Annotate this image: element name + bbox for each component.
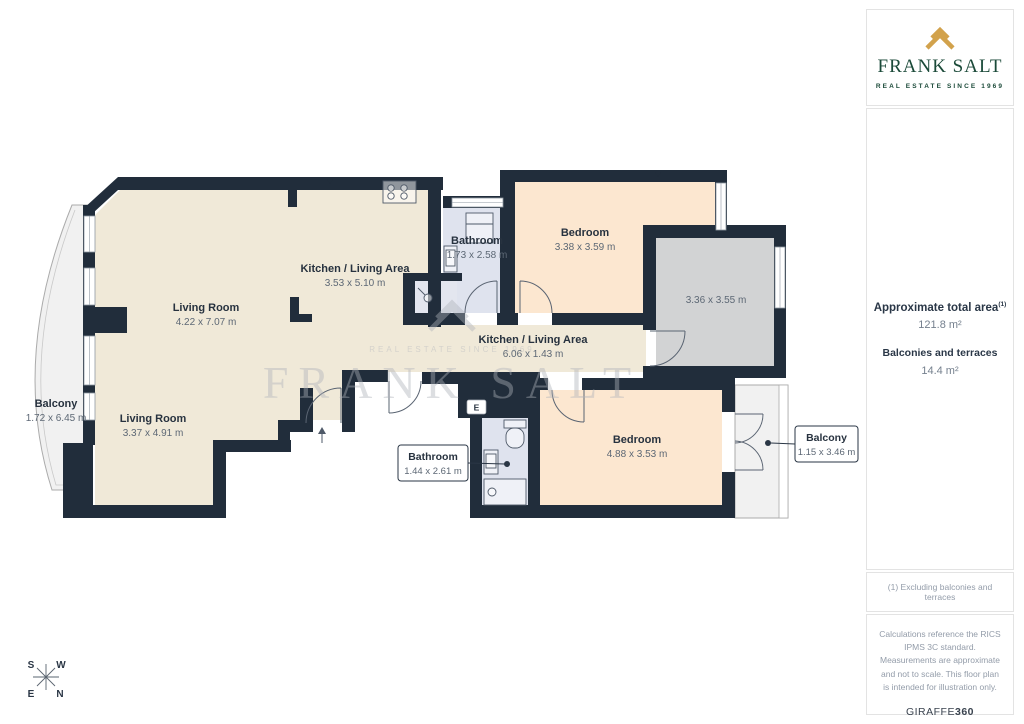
- disclaimer-box: Calculations reference the RICS IPMS 3C …: [866, 614, 1014, 715]
- stove-icon: [383, 181, 416, 203]
- compass-e: E: [28, 689, 35, 700]
- franksalt-chevron-icon: [920, 26, 960, 52]
- provider-suffix: 360: [955, 706, 974, 718]
- balcony-right-dims: 1.15 x 3.46 m: [798, 447, 856, 458]
- compass-rose: S W E N: [28, 660, 67, 700]
- corridor-name: Kitchen / Living Area: [478, 334, 588, 346]
- balcony-right-name: Balcony: [806, 432, 847, 444]
- corridor-dims: 6.06 x 1.43 m: [503, 349, 564, 360]
- sink-icon-bottom: [484, 450, 498, 474]
- right-balcony: [735, 385, 788, 518]
- provider-name: GIRAFFE: [906, 706, 955, 718]
- floorplan-page: REAL ESTATE SINCE 1969 FRANK SALT E Livi…: [0, 0, 1024, 724]
- bath-top-dims: 1.73 x 2.58 m: [447, 250, 508, 261]
- footnote-text: (1) Excluding balconies and terraces: [875, 582, 1005, 602]
- entrance-label: E: [474, 403, 480, 413]
- living-bottom-name: Living Room: [120, 413, 187, 425]
- entry-arrow-icon: [318, 427, 326, 434]
- compass-s: S: [28, 660, 35, 671]
- total-area-label-text: Approximate total area: [874, 301, 999, 313]
- bath-bottom-dims: 1.44 x 2.61 m: [404, 466, 462, 477]
- brand-name: FRANK SALT: [878, 56, 1003, 78]
- area-summary-box: Approximate total area(1) 121.8 m² Balco…: [866, 108, 1014, 570]
- watermark-brand: FRANK SALT: [263, 357, 641, 408]
- bed-top-name: Bedroom: [561, 227, 610, 239]
- bath-top-name: Bathroom: [451, 235, 503, 247]
- shower-icon-bottom: [484, 479, 526, 505]
- living-bottom-dims: 3.37 x 4.91 m: [123, 428, 184, 439]
- kitchen-top-name: Kitchen / Living Area: [300, 263, 410, 275]
- balcony-left-dims: 1.72 x 6.45 m: [26, 413, 87, 424]
- footnote-marker: (1): [998, 301, 1006, 308]
- sidebar: FRANK SALT REAL ESTATE SINCE 1969 Approx…: [866, 0, 1016, 724]
- kitchen-top-dims: 3.53 x 5.10 m: [325, 278, 386, 289]
- living-top-name: Living Room: [173, 302, 240, 314]
- toilet-icon: [504, 420, 526, 448]
- compass-n: N: [56, 689, 63, 700]
- store-dims: 3.36 x 3.55 m: [686, 295, 747, 306]
- brand-tagline: REAL ESTATE SINCE 1969: [876, 83, 1004, 90]
- compass-w: W: [56, 660, 66, 671]
- bath-bottom-name: Bathroom: [408, 451, 458, 463]
- balcony-left-name: Balcony: [35, 398, 79, 410]
- total-area-label: Approximate total area(1): [874, 301, 1007, 314]
- disclaimer-text: Calculations reference the RICS IPMS 3C …: [877, 628, 1003, 694]
- total-area-value: 121.8 m²: [918, 319, 961, 331]
- bed-bottom-dims: 4.88 x 3.53 m: [607, 449, 668, 460]
- living-top-dims: 4.22 x 7.07 m: [176, 317, 237, 328]
- bed-top-dims: 3.38 x 3.59 m: [555, 242, 616, 253]
- balconies-value: 14.4 m²: [921, 365, 958, 377]
- provider-logo: GIRAFFE360: [877, 704, 1003, 720]
- footnote-box: (1) Excluding balconies and terraces: [866, 572, 1014, 612]
- bed-bottom-name: Bedroom: [613, 434, 662, 446]
- logo-box: FRANK SALT REAL ESTATE SINCE 1969: [866, 9, 1014, 106]
- balconies-label: Balconies and terraces: [883, 347, 998, 359]
